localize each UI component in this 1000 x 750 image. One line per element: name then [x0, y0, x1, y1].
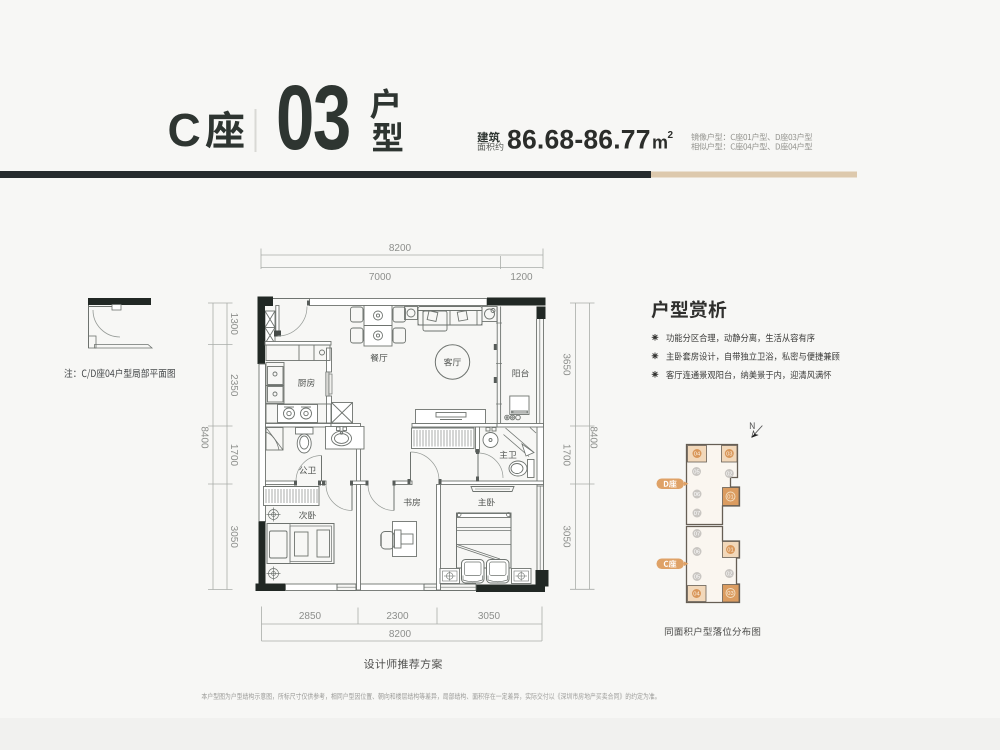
svg-text:1700: 1700: [561, 444, 572, 467]
svg-text:04: 04: [694, 452, 701, 458]
svg-text:05: 05: [694, 575, 700, 581]
svg-text:01: 01: [727, 495, 733, 501]
svg-text:3050: 3050: [478, 611, 501, 622]
svg-text:C: C: [168, 104, 201, 156]
svg-text:7000: 7000: [369, 272, 392, 283]
svg-text:02: 02: [726, 572, 732, 578]
svg-text:8200: 8200: [389, 243, 412, 254]
svg-text:03: 03: [726, 452, 732, 458]
svg-text:2850: 2850: [299, 611, 322, 622]
svg-text:m: m: [652, 133, 668, 153]
svg-text:06: 06: [694, 492, 700, 498]
svg-text:2300: 2300: [386, 611, 409, 622]
svg-text:03: 03: [276, 66, 350, 169]
svg-text:8400: 8400: [199, 426, 210, 449]
svg-text:1700: 1700: [228, 444, 239, 467]
svg-text:2350: 2350: [228, 374, 239, 397]
svg-text:3650: 3650: [561, 353, 572, 376]
svg-text:2: 2: [668, 130, 674, 141]
svg-text:8200: 8200: [389, 629, 412, 640]
svg-text:04: 04: [693, 592, 700, 598]
svg-text:86.68-86.77: 86.68-86.77: [507, 125, 651, 155]
svg-text:02: 02: [726, 472, 732, 478]
svg-text:8400: 8400: [588, 426, 599, 449]
svg-text:1300: 1300: [228, 313, 239, 336]
svg-text:3050: 3050: [561, 525, 572, 548]
svg-text:3050: 3050: [228, 526, 239, 549]
svg-text:05: 05: [693, 470, 699, 476]
svg-text:07: 07: [694, 532, 700, 538]
svg-text:01: 01: [727, 548, 733, 554]
svg-text:03: 03: [727, 591, 733, 597]
svg-text:06: 06: [694, 550, 700, 556]
svg-text:1200: 1200: [510, 272, 533, 283]
svg-text:07: 07: [694, 511, 700, 517]
